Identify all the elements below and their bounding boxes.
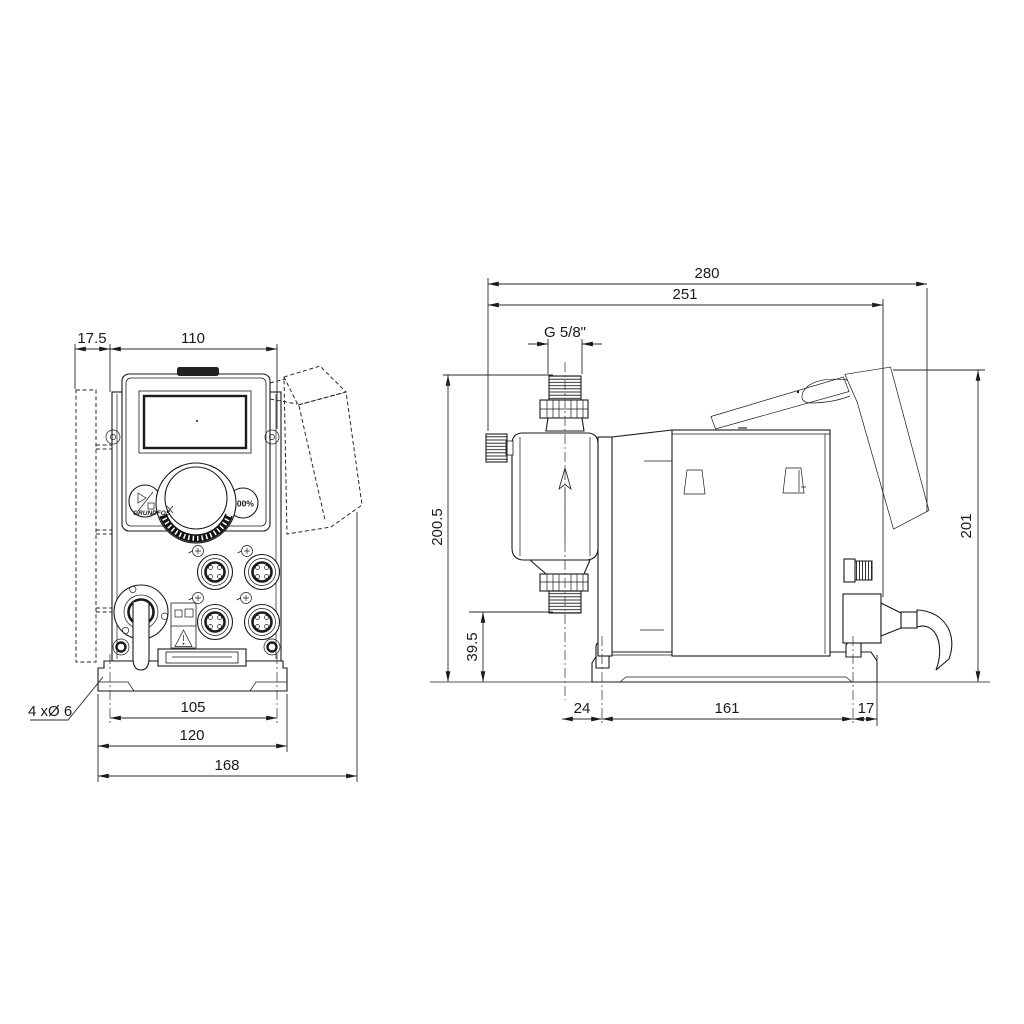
wall-bracket-dashed <box>76 390 112 662</box>
dimension-39-5: 39.5 <box>464 612 553 682</box>
click-wheel-knob[interactable] <box>156 463 236 543</box>
dimension-17-5: 17.5 <box>75 330 110 392</box>
connector-socket <box>245 605 280 640</box>
pump-dimensional-drawing: 100% GRUNDFOS <box>0 0 1024 1024</box>
front-housing-band <box>598 430 672 656</box>
dim-label: G 5/8" <box>544 324 586 341</box>
dim-label: 200.5 <box>429 508 446 546</box>
dim-label: 17 <box>858 700 875 717</box>
side-view: 280 251 G 5/8" 200.5 39.5 201 <box>429 265 990 726</box>
front-view: 100% GRUNDFOS <box>28 330 362 782</box>
display <box>139 391 251 453</box>
control-panel: 100% GRUNDFOS <box>122 367 270 543</box>
panel-top-tab <box>177 367 219 376</box>
priming-knob <box>486 434 513 462</box>
dim-label: 251 <box>672 286 697 303</box>
power-cable <box>917 610 952 670</box>
dim-label: 17.5 <box>77 330 106 347</box>
vent-gland <box>844 559 872 582</box>
dosing-head-body <box>512 433 598 560</box>
suction-union-nut <box>540 574 588 591</box>
connector-socket <box>198 605 233 640</box>
dim-label: 105 <box>180 699 205 716</box>
connector-socket <box>245 555 280 590</box>
discharge-union-nut <box>540 400 588 418</box>
dimension-105: 105 <box>110 699 277 718</box>
dim-label: 39.5 <box>464 632 481 661</box>
dim-label: 280 <box>694 265 719 282</box>
holes-note-label: 4 xØ 6 <box>28 703 72 720</box>
dim-label: 24 <box>574 700 591 717</box>
warning-label <box>171 603 196 648</box>
pump-housing-side <box>672 428 830 656</box>
dosing-head <box>486 376 598 613</box>
dim-label: 120 <box>179 727 204 744</box>
power-cable-front <box>133 602 149 670</box>
base-clamp <box>158 649 246 666</box>
dimensional-drawing-page: 100% GRUNDFOS <box>0 0 1024 1024</box>
mounting-holes-note: 4 xØ 6 <box>28 677 103 720</box>
connector-socket <box>198 555 233 590</box>
logo-text: GRUNDFOS <box>133 510 171 517</box>
dim-label: 161 <box>714 700 739 717</box>
dim-label: 168 <box>214 757 239 774</box>
control-cube-flap-dashed <box>270 366 362 534</box>
dim-label: 110 <box>181 330 205 347</box>
dim-label: 201 <box>958 513 975 538</box>
